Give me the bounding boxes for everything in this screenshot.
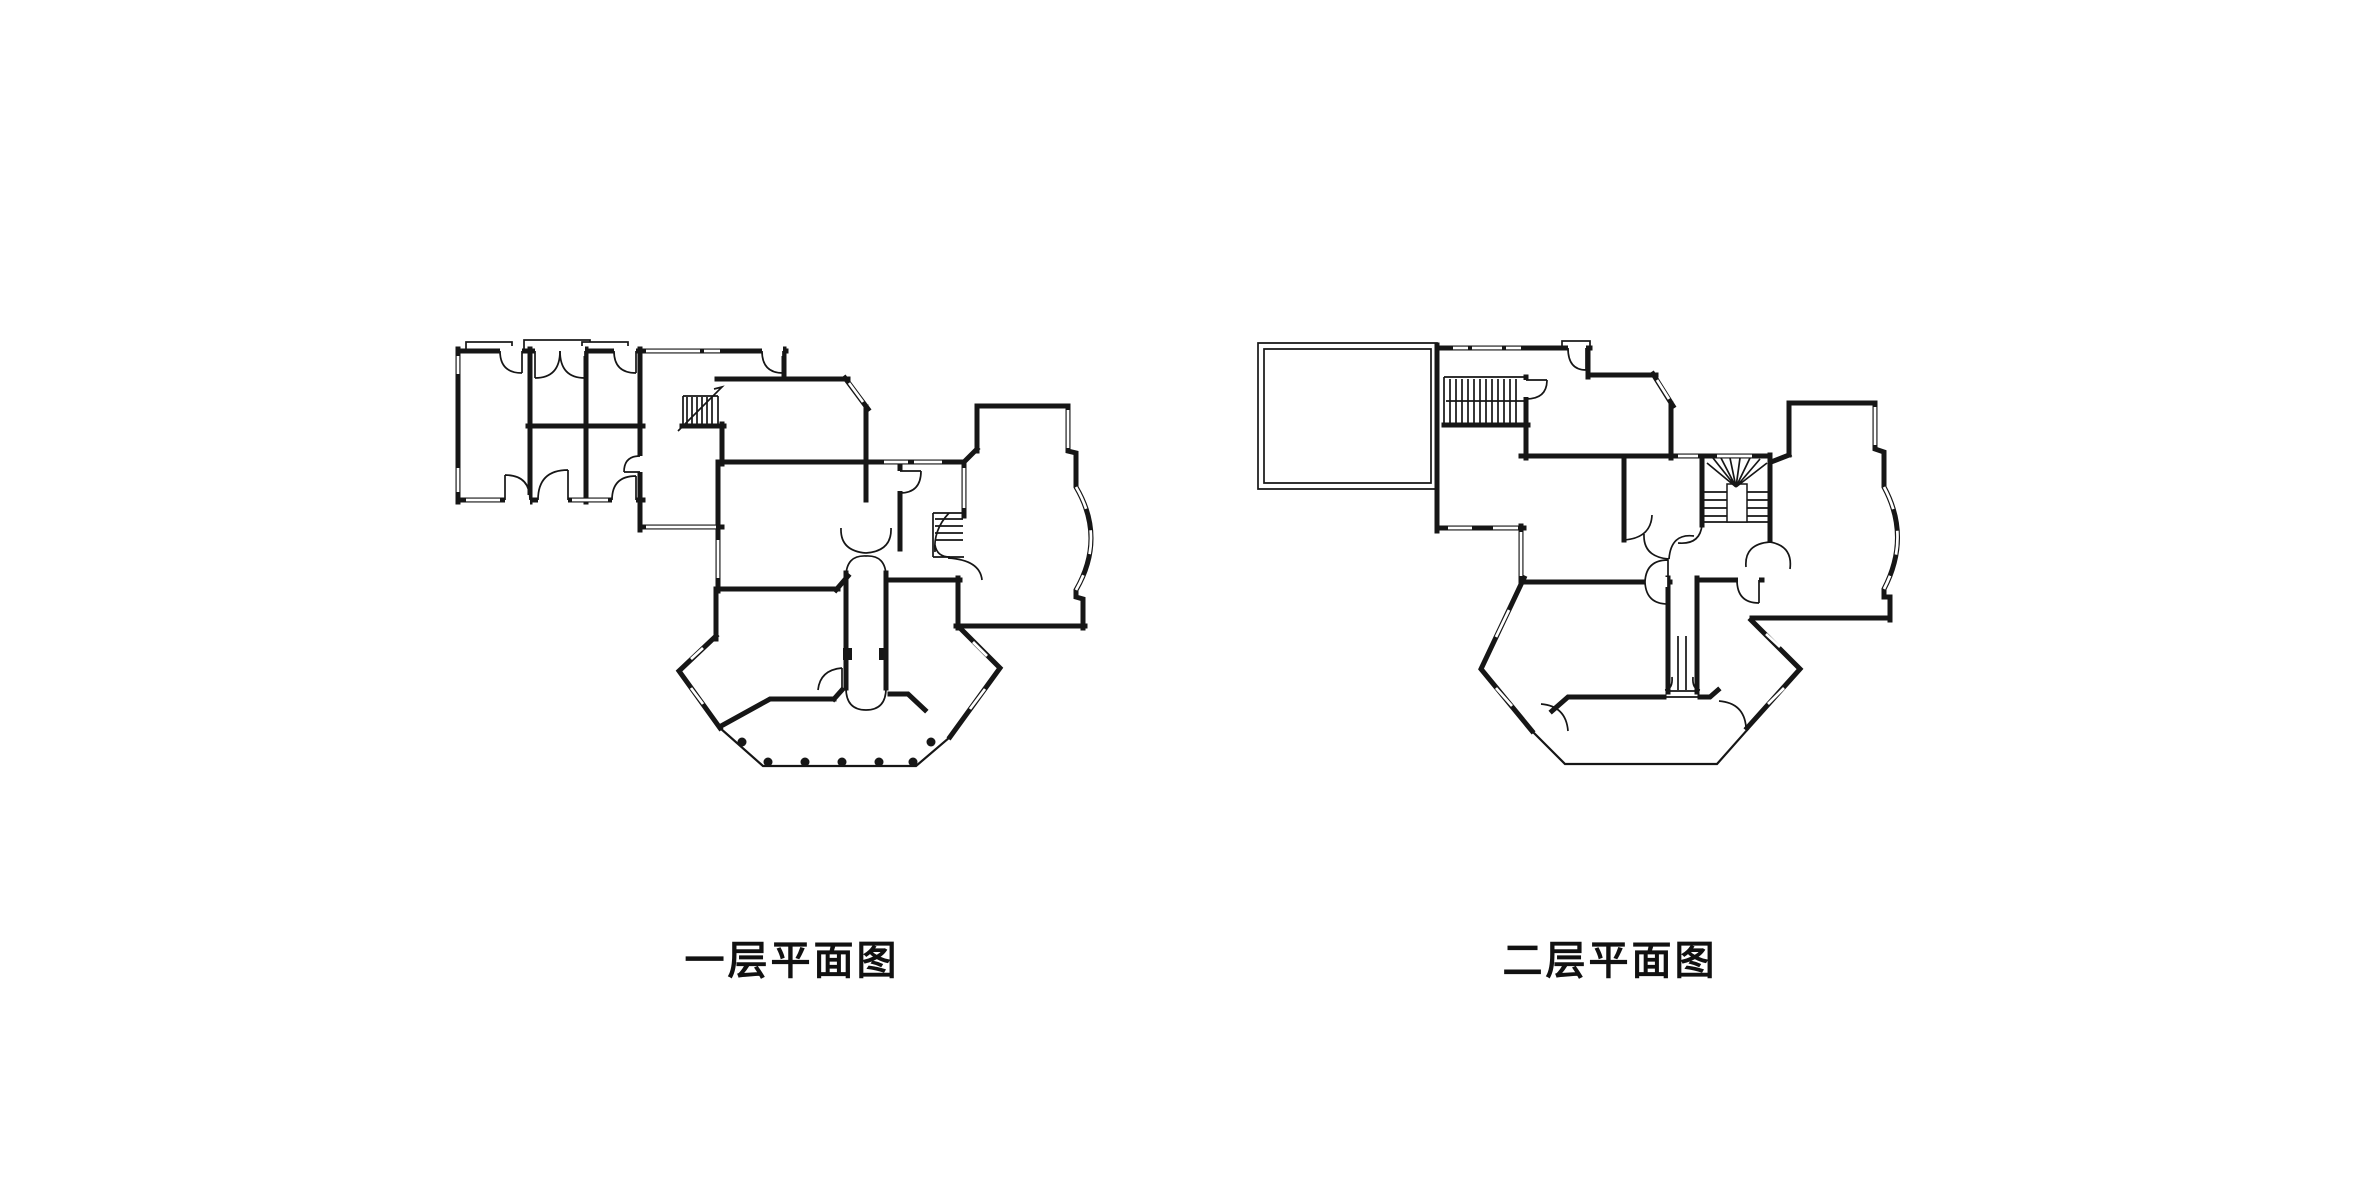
first-floor-plan bbox=[458, 340, 1091, 767]
caption-first-floor: 一层平面图 bbox=[622, 928, 962, 986]
caption-second-floor: 二层平面图 bbox=[1440, 928, 1780, 986]
plan-sheet: 一层平面图 二层平面图 bbox=[0, 0, 2362, 1181]
floor-plans-drawing bbox=[0, 0, 2362, 1181]
second-floor-plan bbox=[1258, 341, 1898, 764]
